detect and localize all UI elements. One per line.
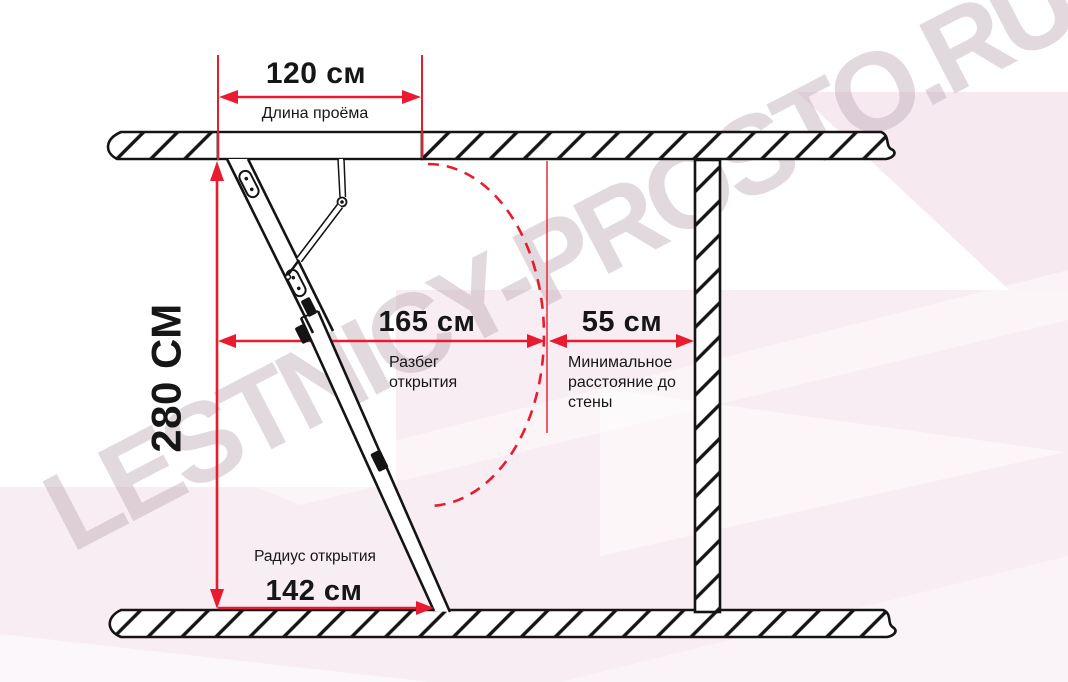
strut-anchor: [286, 275, 291, 280]
dim-ceiling-height-value: 280 СМ: [142, 303, 189, 453]
dim-wall-distance-label: Минимальное расстояние до стены: [568, 353, 708, 413]
ceiling-opening: [218, 132, 422, 159]
door-rail-left: [227, 159, 313, 333]
spring-bracket-fill: [341, 159, 343, 197]
strut-cylinder-fill: [299, 206, 340, 260]
arrowhead-120-right: [402, 90, 421, 104]
dim-wall-distance-value: 55 см: [552, 306, 692, 338]
dim-opening-width-label: Длина проёма: [215, 104, 415, 124]
arrowhead-120-left: [219, 90, 238, 104]
ceiling-left-slab: [108, 132, 218, 159]
ceiling-section: [108, 132, 894, 159]
floor-slab: [110, 610, 896, 637]
arrowhead-280-down: [210, 589, 224, 609]
strut-cylinder-edge1: [301, 208, 342, 262]
strut-cylinder-edge2: [297, 204, 338, 258]
attic-ladder-dimension-diagram: LESTNICY-PROSTO.RU: [0, 0, 1068, 682]
dim-opening-span-label: Разбег открытия: [389, 353, 494, 393]
dim-opening-radius-value: 142 см: [234, 575, 394, 607]
floor-section: [110, 610, 896, 637]
dim-opening-span-value: 165 см: [347, 306, 507, 338]
dim-opening-radius-label: Радиус открытия: [235, 547, 395, 567]
arrowhead-165-left: [218, 334, 236, 348]
pivot-pin: [340, 200, 344, 204]
dim-opening-width-value: 120 см: [216, 57, 416, 91]
arrowhead-165-right: [527, 334, 545, 348]
door-rail-right: [248, 159, 333, 331]
ceiling-right-slab: [422, 132, 894, 159]
arrowhead-280-up: [210, 161, 224, 181]
